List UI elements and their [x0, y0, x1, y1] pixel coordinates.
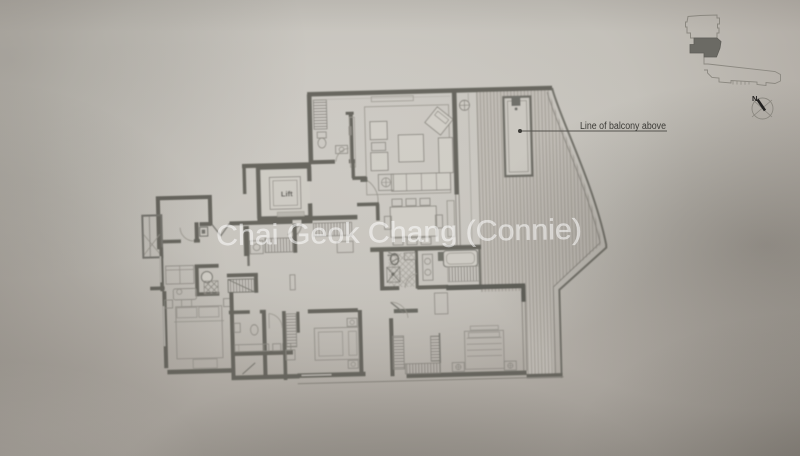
svg-text:Chai Geok Chang (Connie): Chai Geok Chang (Connie) [216, 214, 583, 252]
svg-text:N: N [752, 94, 757, 103]
svg-text:Line of balcony above: Line of balcony above [580, 121, 666, 132]
